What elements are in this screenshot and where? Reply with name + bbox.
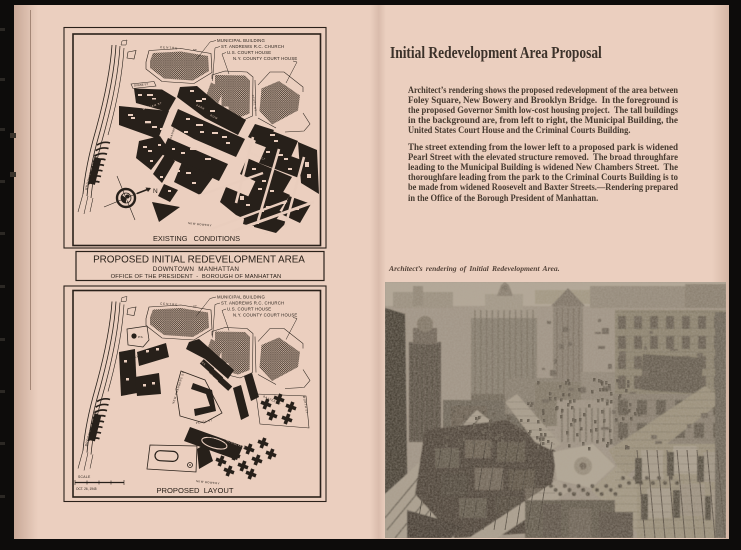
svg-text:SCALE: SCALE	[78, 475, 91, 479]
svg-text:PROPOSED INITIAL REDEVELOPMENT: PROPOSED INITIAL REDEVELOPMENT AREA	[93, 255, 305, 266]
svg-text:ST. ANDREWS R.C. CHURCH: ST. ANDREWS R.C. CHURCH	[221, 301, 284, 306]
svg-text:EXISTING CONDITIONS: EXISTING CONDITIONS	[153, 234, 240, 243]
svg-text:N.Y. COUNTY COURT HOUSE: N.Y. COUNTY COURT HOUSE	[233, 313, 297, 318]
svg-text:OCT. 26, 1945: OCT. 26, 1945	[76, 487, 97, 491]
svg-text:NEW BOWERY: NEW BOWERY	[188, 221, 212, 227]
svg-text:DOWNTOWN MANHATTAN: DOWNTOWN MANHATTAN	[153, 266, 240, 273]
svg-text:WORTH ST: WORTH ST	[302, 395, 309, 414]
svg-text:MUNICIPAL BUILDING: MUNICIPAL BUILDING	[217, 38, 265, 43]
svg-text:U.S. COURT HOUSE: U.S. COURT HOUSE	[227, 50, 271, 55]
svg-text:NEW CHAMBERS ST: NEW CHAMBERS ST	[171, 371, 185, 405]
svg-text:U.S. COURT HOUSE: U.S. COURT HOUSE	[227, 307, 271, 312]
svg-text:ST: ST	[193, 305, 197, 309]
svg-text:OFFICE OF THE PRESIDENT - BO: OFFICE OF THE PRESIDENT - BOROUGH OF MAN…	[111, 274, 282, 280]
svg-text:ST: ST	[193, 48, 197, 52]
svg-text:P.S.: P.S.	[138, 335, 143, 339]
svg-text:PROPOSED LAYOUT: PROPOSED LAYOUT	[156, 486, 233, 495]
svg-text:ST. ANDREWS R.C. CHURCH: ST. ANDREWS R.C. CHURCH	[221, 44, 284, 49]
svg-text:N: N	[153, 188, 158, 195]
svg-text:NEW BOWERY: NEW BOWERY	[196, 479, 220, 485]
svg-text:N.Y. COUNTY COURT HOUSE: N.Y. COUNTY COURT HOUSE	[233, 56, 297, 61]
svg-text:PEARL ST: PEARL ST	[251, 94, 258, 111]
svg-text:MUNICIPAL BUILDING: MUNICIPAL BUILDING	[217, 295, 265, 300]
svg-text:DUANE ST: DUANE ST	[134, 82, 149, 87]
svg-text:PEARL ST: PEARL ST	[195, 418, 212, 425]
